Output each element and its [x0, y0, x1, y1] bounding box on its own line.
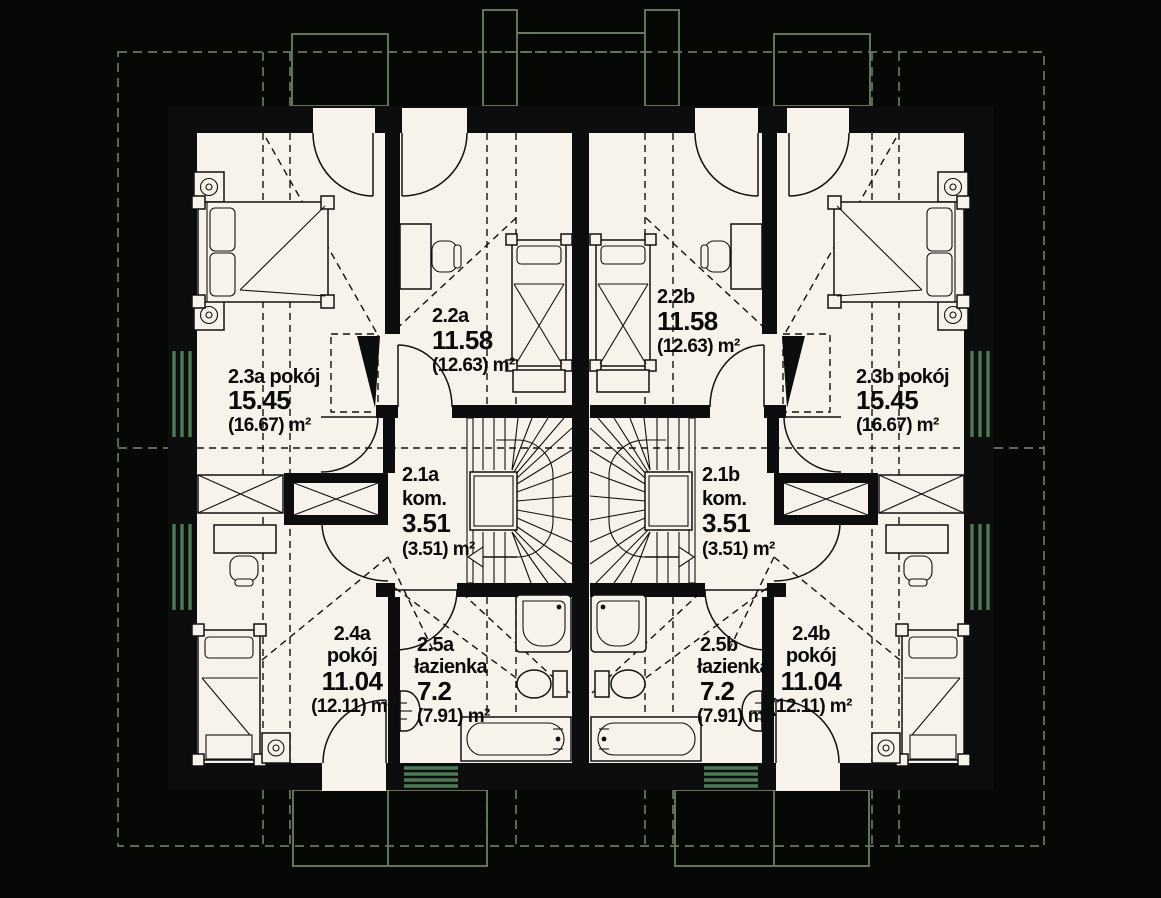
room-2-5b-area: 7.2: [700, 676, 734, 706]
room-2-1b-name: 2.1b: [702, 464, 740, 486]
single-bed-2-4a: [192, 624, 266, 766]
nightstand-2-4b: [872, 733, 900, 763]
room-2-4a-area-gross: (12.11) m²: [311, 696, 393, 717]
room-2-3a-area-gross: (16.67) m²: [228, 415, 311, 436]
room-2-2b-area: 11.58: [657, 306, 718, 336]
room-2-4b-type: pokój: [786, 645, 836, 667]
room-2-1b-area-gross: (3.51) m²: [702, 539, 775, 560]
dresser-2-2a: [513, 370, 565, 392]
room-2-2a-name: 2.2a: [432, 305, 470, 327]
room-2-5b-type: łazienka: [697, 656, 771, 678]
shower-2-5b: [591, 595, 646, 652]
room-2-4a-area: 11.04: [322, 666, 384, 696]
room-2-5b-name: 2.5b: [700, 634, 738, 656]
single-bed-2-4b: [896, 624, 970, 766]
room-2-4a-type: pokój: [327, 645, 377, 667]
room-2-5b-area-gross: (7.91) m²: [697, 706, 770, 727]
room-2-5a-type: łazienka: [414, 656, 488, 678]
room-2-1a-area-gross: (3.51) m²: [402, 539, 475, 560]
room-2-4b-area: 11.04: [781, 666, 843, 696]
toilet-2-5a: [517, 670, 567, 698]
room-2-5a-area-gross: (7.91) m²: [417, 706, 490, 727]
nightstand-2-4a: [262, 733, 290, 763]
room-2-2a-area-gross: (12.63) m²: [432, 355, 515, 376]
room-2-1a-area: 3.51: [402, 508, 450, 538]
room-2-1a-name: 2.1a: [402, 464, 440, 486]
room-2-2a-area: 11.58: [432, 325, 493, 355]
bathtub-2-5b: [591, 717, 701, 761]
room-2-4b-name: 2.4b: [792, 623, 830, 645]
floor-plan-page: 2.3a pokój 15.45 (16.67) m² 2.2a 11.58 (…: [0, 0, 1161, 898]
dresser-2-2b: [597, 370, 649, 392]
room-2-2b-area-gross: (12.63) m²: [657, 336, 740, 357]
room-2-4b-area-gross: (12.11) m²: [770, 696, 852, 717]
room-2-3b-area-gross: (16.67) m²: [856, 415, 939, 436]
toilet-2-5b: [595, 670, 645, 698]
room-2-1b-type: kom.: [702, 488, 746, 510]
room-2-5a-name: 2.5a: [417, 634, 455, 656]
room-2-1a-type: kom.: [402, 488, 446, 510]
room-2-2b-name: 2.2b: [657, 286, 695, 308]
room-2-5a-area: 7.2: [417, 676, 451, 706]
room-2-3a-area: 15.45: [228, 385, 290, 415]
room-2-3b-area: 15.45: [856, 385, 918, 415]
floor-plan-canvas: 2.3a pokój 15.45 (16.67) m² 2.2a 11.58 (…: [0, 0, 1161, 898]
shower-2-5a: [516, 595, 571, 652]
room-2-1b-area: 3.51: [702, 508, 750, 538]
room-2-4a-name: 2.4a: [334, 623, 372, 645]
